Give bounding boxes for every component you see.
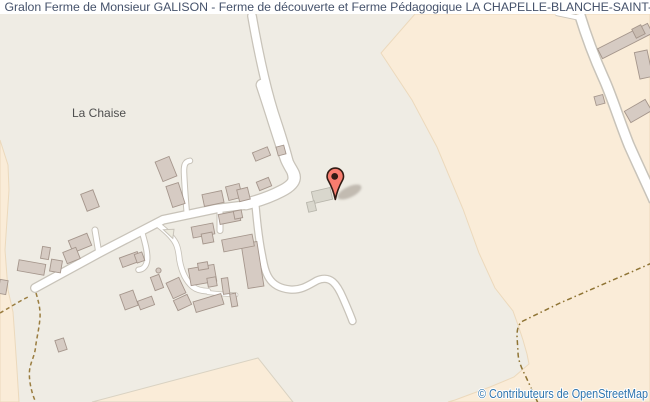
svg-text:© Contributeurs de OpenStreetM: © Contributeurs de OpenStreetMap	[478, 386, 648, 401]
svg-text:La Chaise: La Chaise	[72, 106, 126, 120]
svg-text:Gralon Ferme de Monsieur GALIS: Gralon Ferme de Monsieur GALISON - Ferme…	[5, 0, 650, 14]
